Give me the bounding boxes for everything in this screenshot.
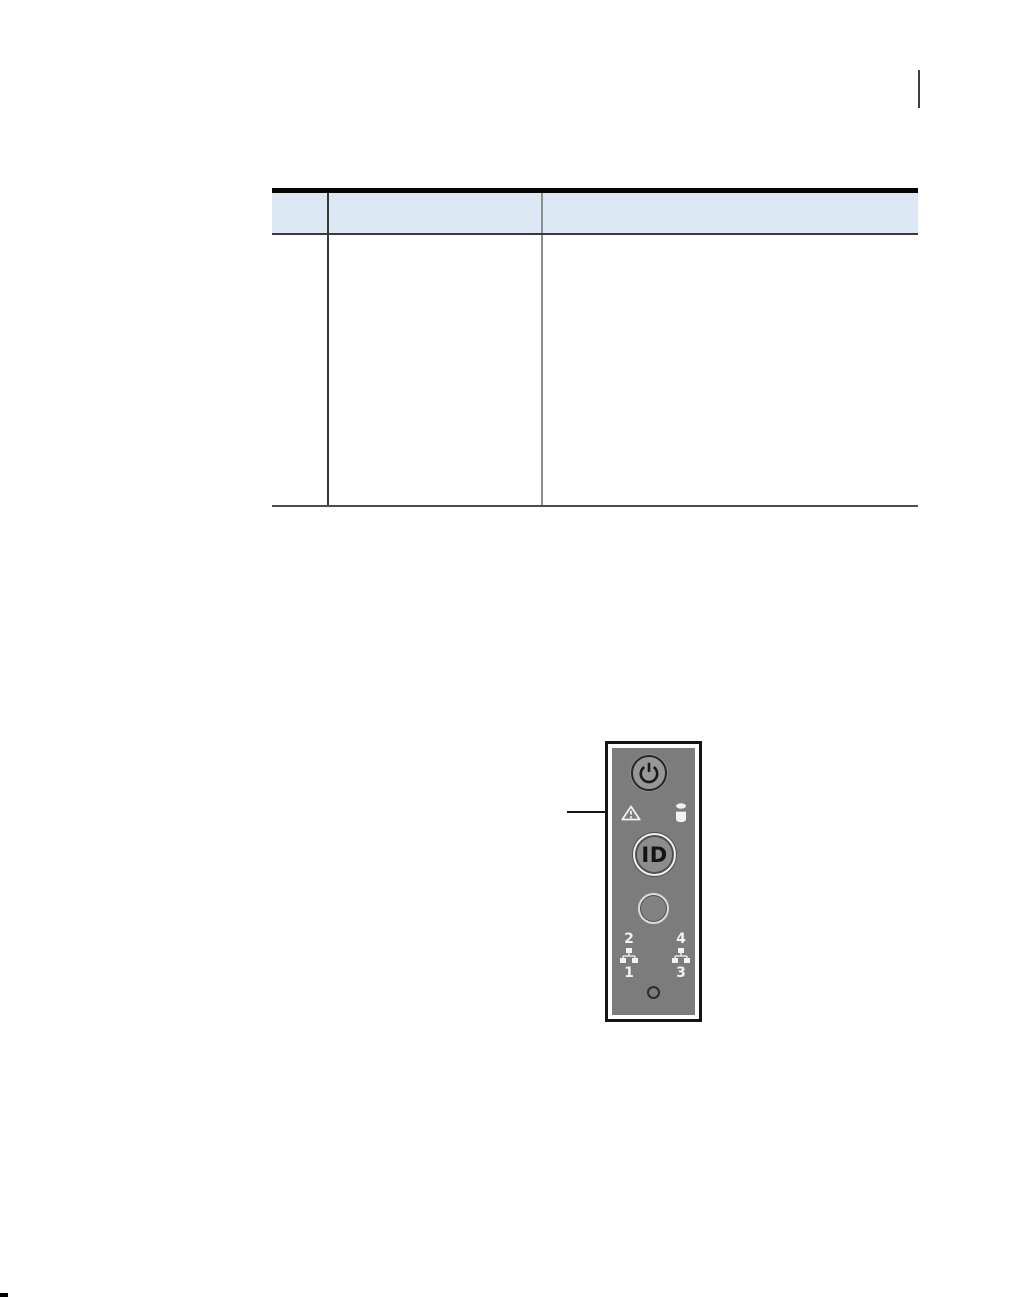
power-button (631, 755, 667, 791)
network-icon (671, 948, 691, 964)
table-header-cell (543, 193, 918, 233)
nmi-button (638, 893, 669, 924)
nic-label-2: 2 (620, 931, 638, 947)
network-icon (619, 948, 639, 964)
nic-label-1: 1 (620, 965, 638, 981)
table-header-cell (329, 193, 543, 233)
manual-page: ID 2 4 1 (0, 0, 1009, 1297)
data-table (272, 188, 918, 507)
system-id-button: ID (633, 833, 676, 876)
table-cell (329, 235, 543, 505)
panel-led-hole (647, 986, 660, 999)
drive-activity-icon (675, 803, 687, 823)
table-header-row (272, 193, 918, 235)
table-cell (272, 235, 329, 505)
page-corner-mark (0, 1293, 8, 1297)
front-panel-figure: ID 2 4 1 (605, 741, 702, 1022)
table-cell (543, 235, 918, 505)
nic-label-3: 3 (672, 965, 690, 981)
table-body-row (272, 235, 918, 507)
id-button-label: ID (641, 843, 667, 867)
revision-change-bar (918, 70, 920, 108)
system-status-warning-icon (621, 805, 641, 821)
callout-leader-line (567, 811, 608, 813)
nic-label-4: 4 (672, 931, 690, 947)
power-icon (636, 760, 662, 786)
front-panel-face: ID 2 4 1 (612, 748, 695, 1015)
table-header-cell (272, 193, 329, 233)
